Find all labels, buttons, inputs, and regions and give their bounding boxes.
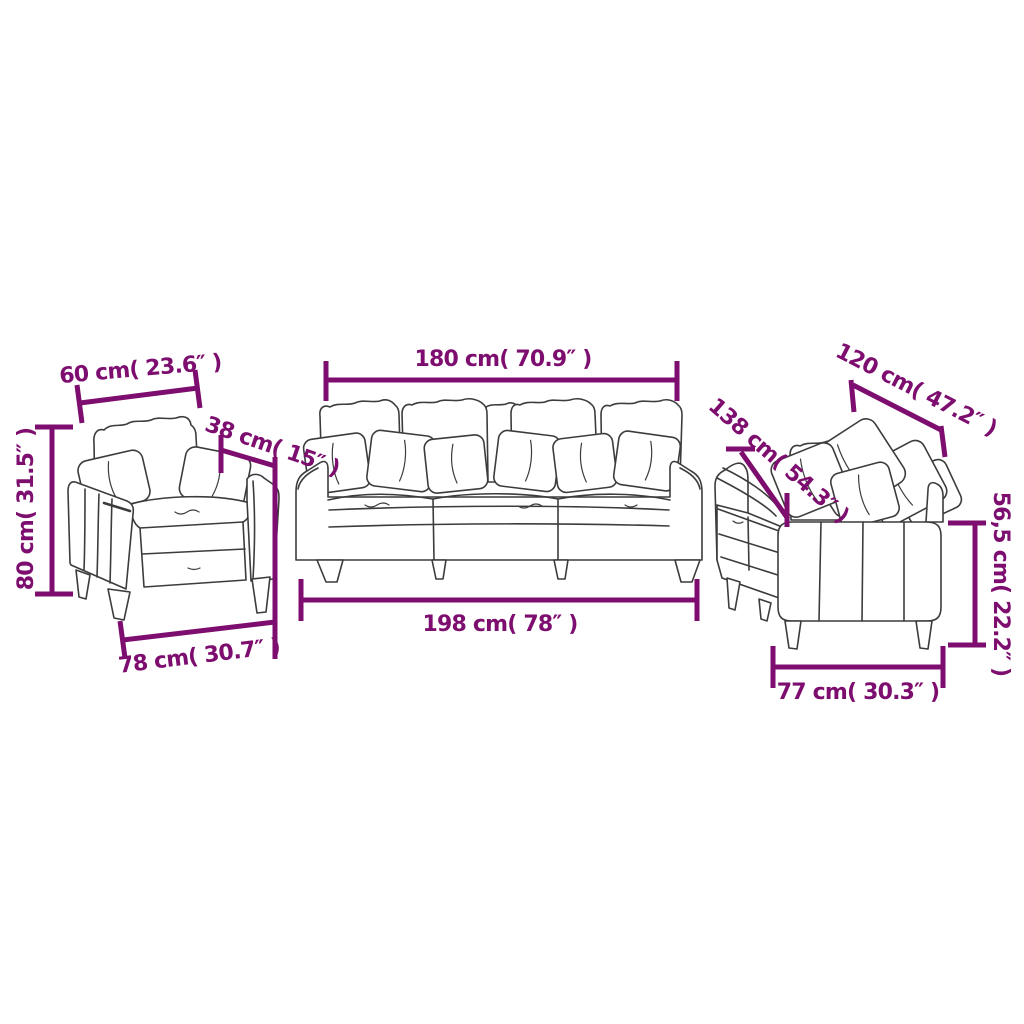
sofa2-leg-rear-left xyxy=(727,578,740,610)
dimension-tick xyxy=(851,380,854,412)
sofa-3seater-drawing xyxy=(296,399,702,582)
sofa3-seat-divider-left xyxy=(433,499,434,560)
pillow-shape xyxy=(493,429,561,492)
pillow-shape xyxy=(552,433,618,494)
sofa3-throw-pillow-3 xyxy=(423,434,488,494)
pillow-shape xyxy=(423,434,488,494)
armchair-height-label: 80 cm( 31.5″ ) xyxy=(14,428,39,591)
armchair-height-dimension xyxy=(35,427,73,594)
armchair-base xyxy=(140,522,246,587)
dimension-tick xyxy=(77,385,82,423)
sofa2-bottom-width-label: 77 cm( 30.3″ ) xyxy=(777,680,940,705)
sofa2-height-dimension xyxy=(948,523,986,645)
sofa2-leg-rear-mid xyxy=(759,599,771,621)
diagram-canvas: 60 cm( 23.6″ ) 38 cm( 15″ ) 80 cm( 31.5″… xyxy=(0,0,1024,1024)
armchair-leg-front-left xyxy=(108,589,130,620)
sofa2-leg-front-left xyxy=(785,621,801,649)
sofa2-panel-seam xyxy=(862,522,863,621)
sofa3-throw-pillow-4 xyxy=(493,429,561,492)
sofa3-bottom-width-label: 198 cm( 78″ ) xyxy=(422,612,577,637)
sofa3-leg-inner-left xyxy=(432,560,446,579)
sofa3-leg-outer-left xyxy=(317,560,343,582)
dimension-tick xyxy=(941,426,945,457)
sofa3-throw-pillow-5 xyxy=(552,433,618,494)
sofa2-front-panel xyxy=(778,522,941,621)
armchair-leg-back-left xyxy=(76,570,90,599)
sofa3-leg-outer-right xyxy=(675,560,700,582)
sofa3-leg-inner-right xyxy=(554,560,568,579)
armchair-bottom-width-label: 78 cm( 30.7″ ) xyxy=(117,634,281,679)
sofa2-height-label: 56,5 cm( 22.2″ ) xyxy=(988,492,1013,677)
sofa2-leg-front-right xyxy=(916,621,932,649)
sofa2-right-back-piece xyxy=(926,483,943,522)
dimension-line xyxy=(80,388,198,403)
sofa2-body-divider xyxy=(748,517,749,570)
armchair-leg-front-right xyxy=(252,577,270,613)
sofa3-top-width-label: 180 cm( 70.9″ ) xyxy=(414,347,591,372)
furniture-dimension-diagram: 60 cm( 23.6″ ) 38 cm( 15″ ) 80 cm( 31.5″… xyxy=(0,0,1024,1024)
